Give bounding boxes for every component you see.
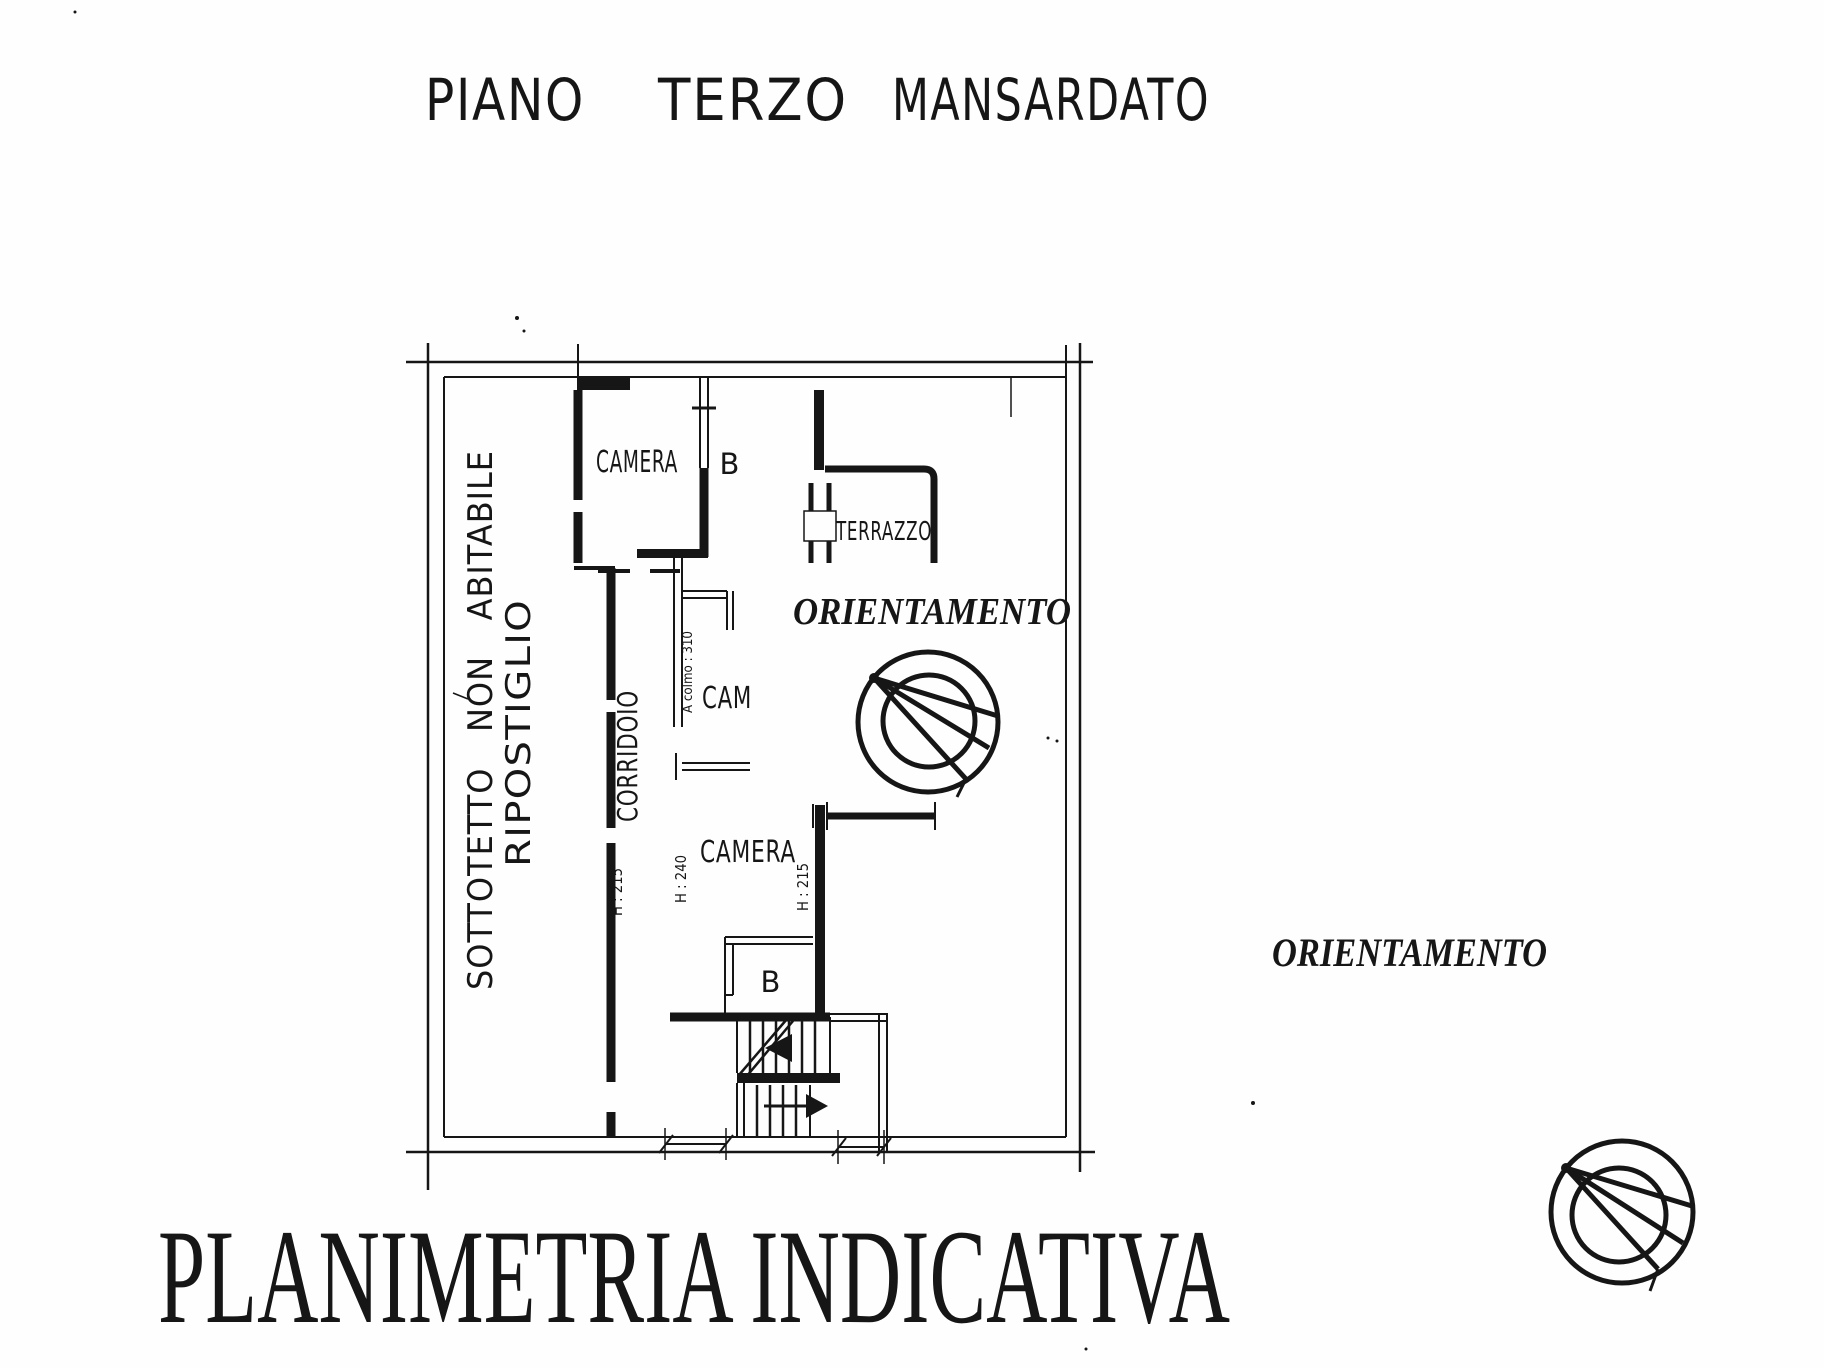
staircase	[737, 1013, 887, 1152]
terrazzo-parapet	[825, 469, 934, 563]
orientamento-label-plan: ORIENTAMENTO	[793, 591, 1071, 633]
room-label-terrazzo: TERRAZZO	[835, 517, 932, 547]
stair-landing	[737, 1073, 840, 1083]
room-label-camera-low: CAMERA	[700, 835, 796, 870]
thick-top-wall-segment	[578, 377, 630, 390]
title-word-terzo: TERZO	[657, 66, 848, 134]
room-camera-low: CAMERA H : 215 H : 240 H : 215	[608, 835, 812, 916]
room-label-sottotetto: SOTTOTETTO NON ABITABILE	[461, 450, 501, 990]
room-label-ripostiglio: RIPOSTIGLIO	[499, 599, 539, 867]
annotation-height-mid: H : 240	[672, 855, 690, 903]
room-camera-mid: A colmo : 310 CAM	[674, 557, 752, 780]
annotation-height-right: H : 215	[794, 863, 812, 911]
footer-title: PLANIMETRIA INDICATIVA	[158, 1203, 1230, 1352]
compass-icon-plan	[858, 652, 998, 797]
terrazzo: TERRAZZO	[804, 390, 934, 563]
orientation-stamp-plan: ORIENTAMENTO	[793, 591, 1071, 797]
room-camera-top: CAMERA B	[596, 377, 740, 558]
room-label-bath-top: B	[720, 447, 741, 481]
annotation-ridge-height: A colmo : 310	[681, 631, 696, 713]
corridor-wall: CORRIDOIO	[574, 390, 680, 1136]
scanned-floor-plan-page: PIANO TERZO MANSARDATO SOTTOTETTO NON AB…	[0, 0, 1824, 1368]
compass-icon-corner	[1551, 1141, 1693, 1291]
dimension-marks	[659, 1128, 891, 1164]
page-title: PIANO TERZO MANSARDATO	[425, 66, 1210, 134]
title-word-piano: PIANO	[425, 66, 585, 134]
room-label-camera-mid: CAM	[702, 681, 752, 716]
zone-sottotetto: SOTTOTETTO NON ABITABILE RIPOSTIGLIO	[461, 450, 539, 990]
title-word-mansardato: MANSARDATO	[892, 66, 1210, 134]
stair-arrow-down-icon	[806, 1094, 828, 1118]
orientamento-label-corner: ORIENTAMENTO	[1272, 930, 1547, 975]
overhang-wall	[813, 802, 935, 830]
orientation-stamp-corner: ORIENTAMENTO	[1272, 930, 1693, 1291]
room-label-camera-top: CAMERA	[596, 445, 678, 480]
room-label-bath-low: B	[761, 965, 782, 999]
floor-plan-drawing: PIANO TERZO MANSARDATO SOTTOTETTO NON AB…	[0, 0, 1824, 1368]
terrazzo-door	[804, 511, 836, 541]
annotation-height-left: H : 215	[608, 868, 626, 916]
room-label-corridoio: CORRIDOIO	[611, 690, 644, 822]
